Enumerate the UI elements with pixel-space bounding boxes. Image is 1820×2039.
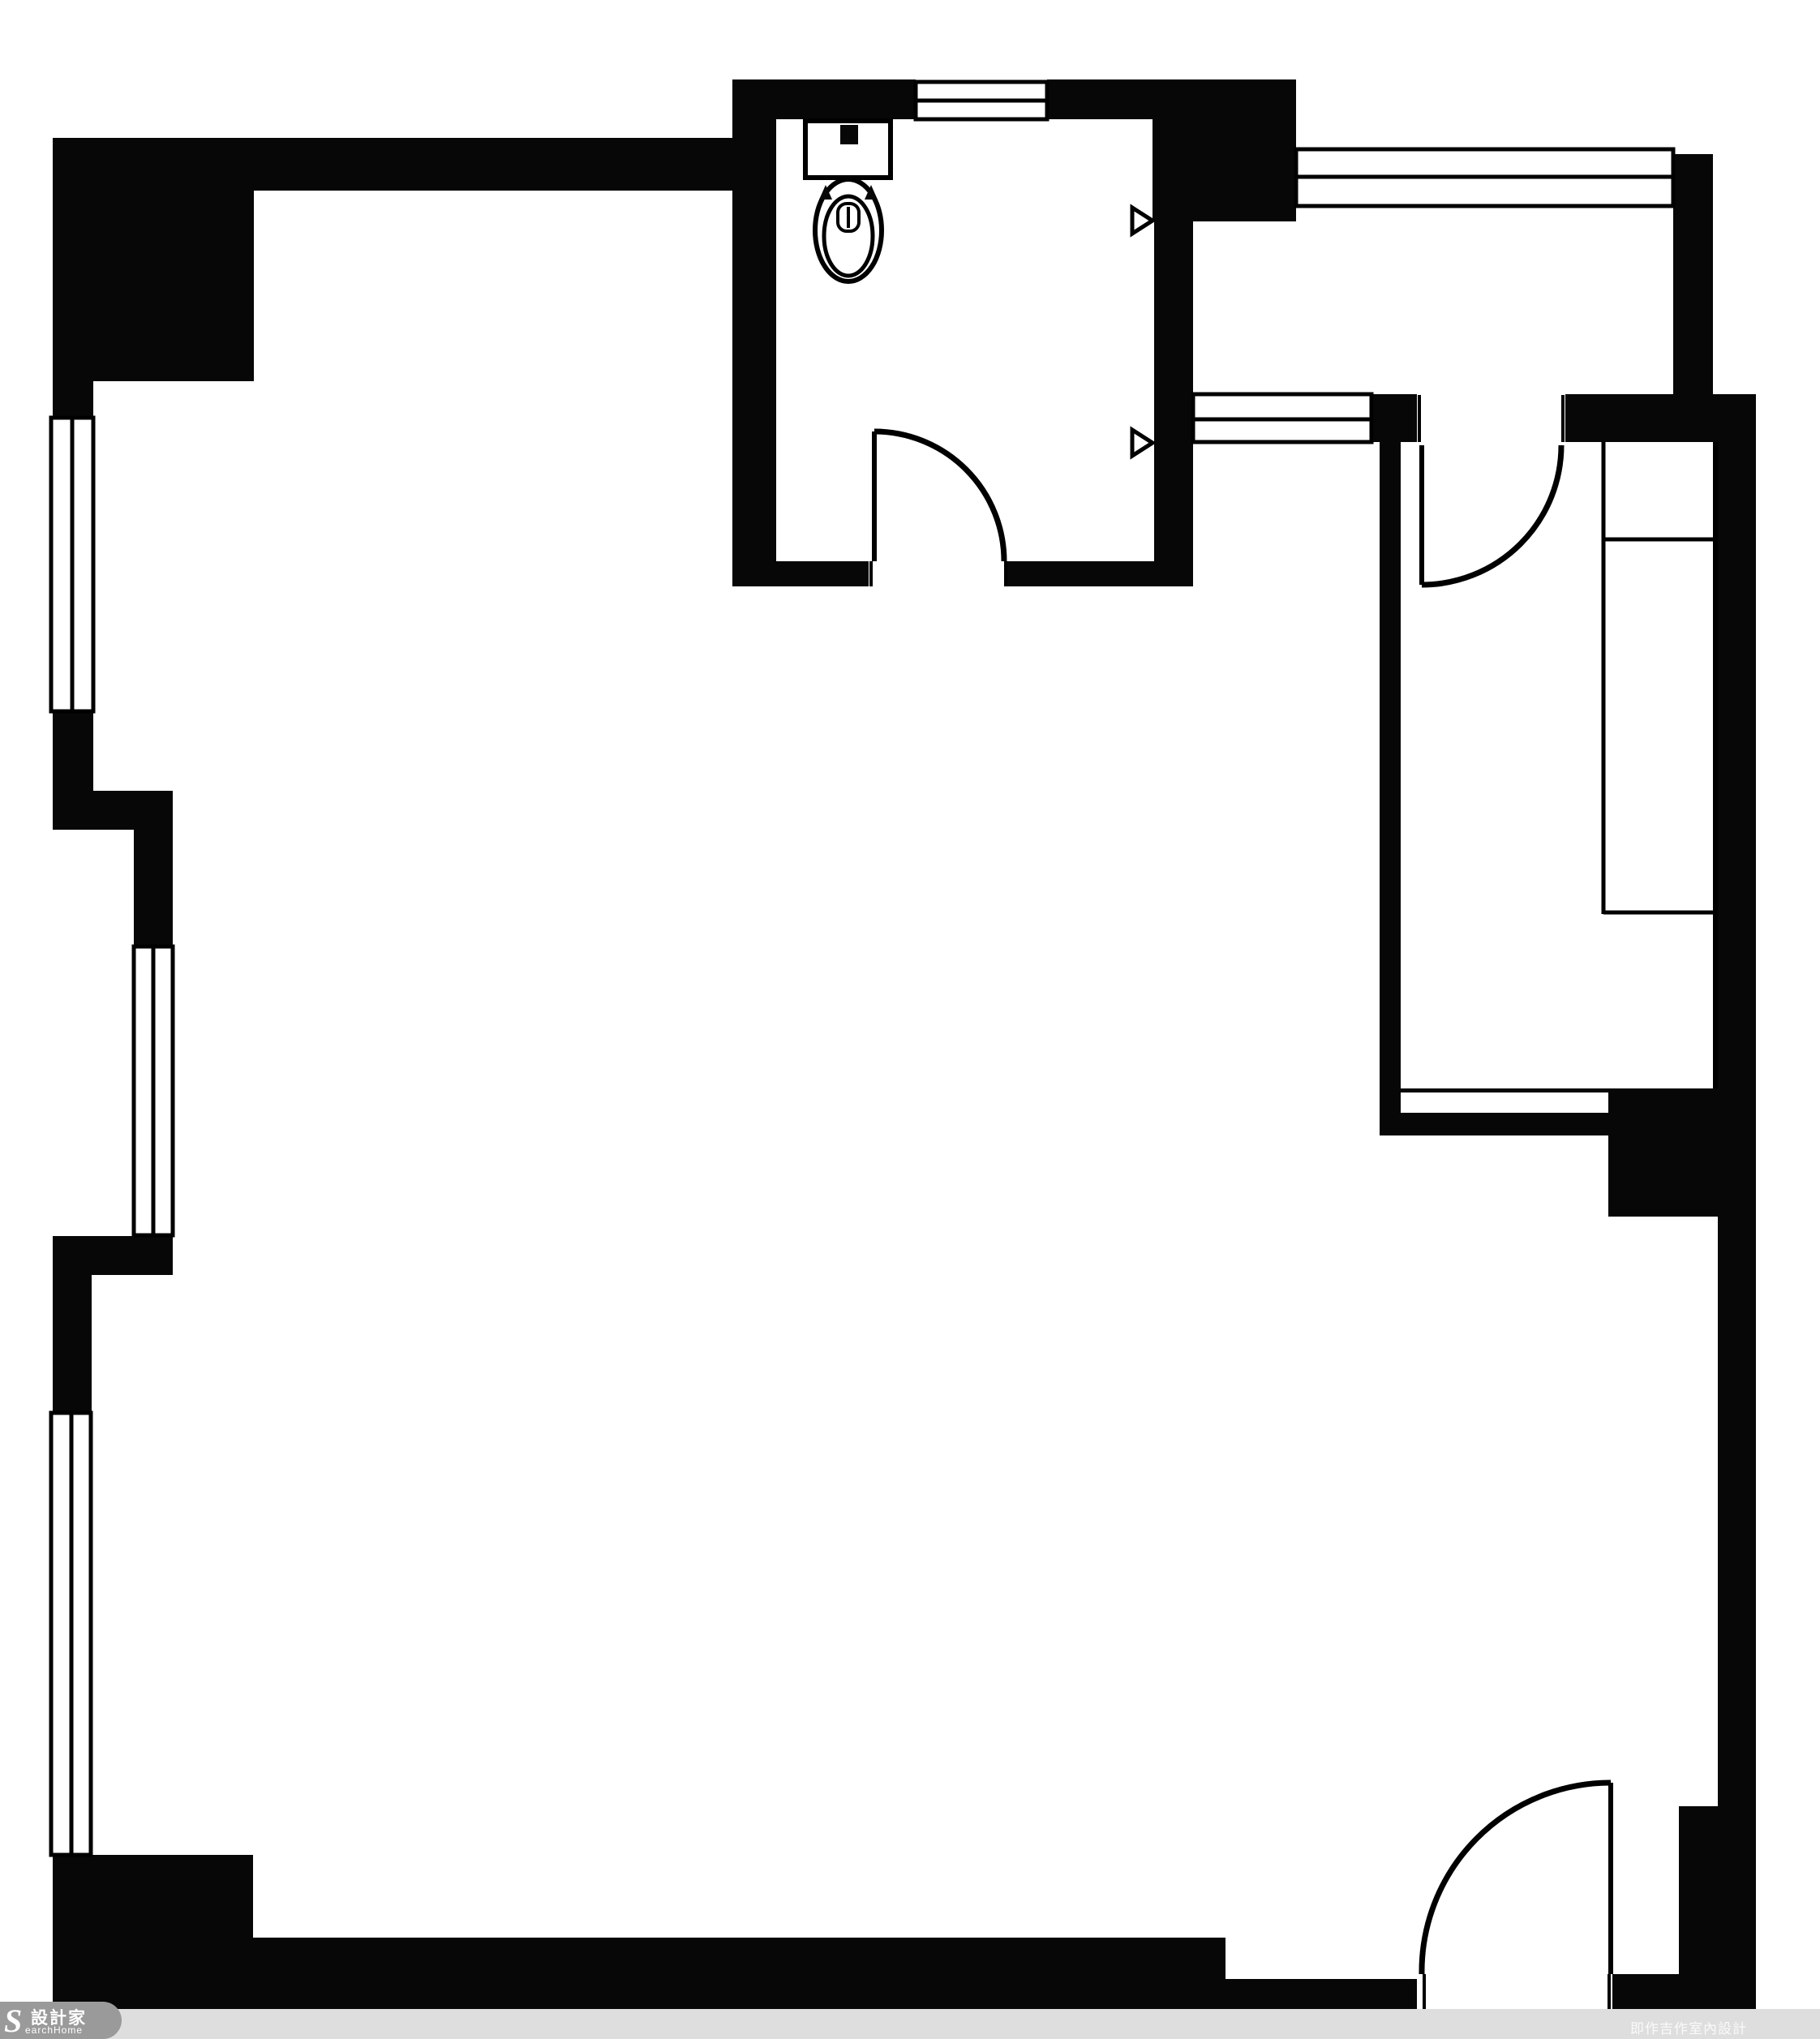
door-swing-arc bbox=[1422, 445, 1561, 585]
floor-plan-page: S 設計家 earchHome 即作吉作室內設計 bbox=[0, 0, 1820, 2039]
door-sill bbox=[1417, 395, 1565, 442]
wall-segment bbox=[1007, 561, 1193, 586]
wall-segment bbox=[1565, 394, 1756, 442]
wall-segment bbox=[1608, 1088, 1718, 1217]
wall-segment bbox=[1401, 1113, 1608, 1135]
watermark-bar bbox=[0, 2009, 1820, 2039]
wall-segment bbox=[53, 138, 732, 191]
wall-segment bbox=[1612, 1974, 1679, 2011]
wall-segment bbox=[53, 1275, 92, 1413]
direction-triangle-icon bbox=[1132, 208, 1153, 234]
wall-segment bbox=[53, 381, 93, 419]
door-swing-arc bbox=[874, 431, 1004, 561]
wall-segment bbox=[1154, 221, 1193, 586]
wall-segment bbox=[1380, 442, 1401, 1135]
wall-segment bbox=[1153, 79, 1296, 221]
wall-segment bbox=[53, 711, 93, 791]
wall-segment bbox=[1225, 1979, 1417, 2011]
wall-segment bbox=[53, 1236, 173, 1275]
floor-plan-svg bbox=[0, 0, 1820, 2039]
wall-segment bbox=[732, 79, 916, 119]
wall-segment bbox=[53, 191, 254, 381]
wall-segment bbox=[253, 1938, 1225, 2011]
door-sill bbox=[869, 561, 1007, 586]
direction-triangle-icon bbox=[1132, 430, 1153, 456]
wall-segment bbox=[1673, 154, 1713, 442]
wall-segment bbox=[732, 561, 869, 586]
toilet-flush-button bbox=[840, 125, 858, 144]
door-swing-arc bbox=[1422, 1783, 1611, 1974]
door-sill bbox=[1421, 1974, 1612, 2011]
wall-segment bbox=[1679, 1806, 1756, 2011]
wall-segment bbox=[134, 830, 173, 947]
wall-segment bbox=[1401, 1088, 1608, 1092]
wall-segment bbox=[732, 119, 776, 586]
logo-subtitle: earchHome bbox=[25, 2024, 83, 2036]
wall-segment bbox=[1371, 394, 1417, 442]
wall-segment bbox=[1047, 79, 1153, 119]
wall-segment bbox=[53, 1855, 253, 2011]
wall-segment bbox=[1718, 442, 1756, 1806]
wall-segment bbox=[53, 791, 173, 830]
credit-text: 即作吉作室內設計 bbox=[1630, 2017, 1747, 2037]
